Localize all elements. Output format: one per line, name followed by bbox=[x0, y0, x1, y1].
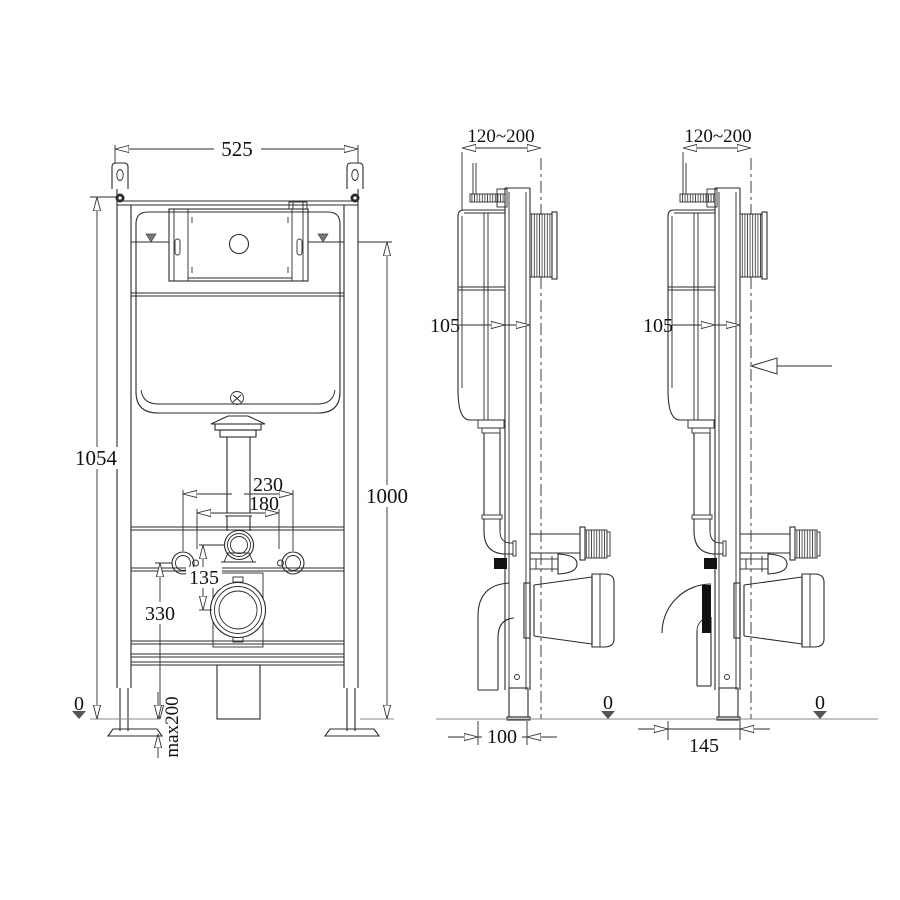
floor-marker-icon bbox=[72, 711, 86, 719]
dim-adjust-feet-label: max200 bbox=[162, 696, 183, 757]
floor-zero-b-label: 0 bbox=[815, 692, 825, 714]
dim-frame-depth-a: 105 bbox=[430, 315, 530, 337]
flush-bend-connector bbox=[225, 531, 254, 560]
outlet-clamp bbox=[702, 585, 711, 633]
dim-front-width: 525 bbox=[115, 137, 358, 163]
dim-foot-offset-b-label: 145 bbox=[689, 735, 719, 757]
dim-install-depth-a-label: 120~200 bbox=[467, 126, 534, 147]
cistern-tank bbox=[136, 212, 340, 437]
wall-mount-tabs bbox=[112, 163, 363, 189]
cistern-profile-b bbox=[668, 210, 715, 433]
frame-bar-side-b bbox=[715, 188, 740, 690]
floor-zero-a-label: 0 bbox=[603, 692, 613, 714]
flush-plate-sleeve bbox=[530, 212, 557, 279]
push-rod-hole bbox=[230, 235, 249, 254]
dim-frame-depth-b-label: 105 bbox=[643, 315, 673, 337]
floor-level-b: 0 bbox=[813, 692, 827, 719]
wall-anchor-bracket bbox=[680, 163, 717, 207]
dim-frame-height-label: 1054 bbox=[75, 446, 118, 470]
outlet-boss bbox=[211, 416, 265, 424]
flush-pipe-side-a bbox=[482, 433, 516, 569]
dim-front-width-label: 525 bbox=[221, 137, 253, 161]
foot-side-b bbox=[717, 675, 740, 721]
dim-bolt-spacing-inner: 180 bbox=[197, 493, 279, 549]
floor-marker-icon bbox=[813, 711, 827, 719]
wall-anchor-bracket bbox=[470, 163, 507, 207]
foot-side-a bbox=[507, 675, 530, 721]
dim-waterline-height: 1000 bbox=[364, 242, 411, 719]
soil-elbow-b bbox=[662, 584, 711, 686]
foot-plate-left bbox=[108, 729, 162, 736]
dim-frame-depth-a-label: 105 bbox=[430, 315, 460, 337]
floor-marker-icon bbox=[601, 711, 615, 719]
level-marker-icon bbox=[146, 234, 156, 242]
flush-plate-sleeve bbox=[740, 212, 767, 279]
floor-level-a: 0 bbox=[601, 692, 615, 719]
waste-horn-b bbox=[734, 574, 824, 647]
fixing-bolt-side-b bbox=[740, 554, 787, 574]
side-view-100: 120~200 bbox=[430, 126, 662, 748]
cistern-profile-a bbox=[458, 210, 505, 433]
level-marker-icon bbox=[318, 234, 328, 242]
toilet-frame-installation-drawing: 525 bbox=[0, 0, 900, 900]
flush-pipe-side-b bbox=[692, 433, 726, 569]
dim-bolt-inner-label: 180 bbox=[249, 493, 279, 515]
waste-horn-a bbox=[524, 574, 614, 647]
inlet-connector-a bbox=[530, 527, 610, 560]
inlet-connector-b bbox=[740, 527, 820, 560]
dim-install-depth-b-label: 120~200 bbox=[684, 126, 751, 147]
rear-anchor-bolt bbox=[494, 558, 507, 569]
dim-waterline-height-label: 1000 bbox=[366, 484, 408, 508]
dim-foot-offset-a: 100 bbox=[448, 721, 557, 748]
rear-anchor-bolt bbox=[704, 558, 717, 569]
front-view: 525 bbox=[72, 137, 411, 758]
water-level-line bbox=[131, 234, 392, 242]
technical-drawing-page: 525 bbox=[0, 0, 900, 900]
frame-base bbox=[90, 665, 394, 736]
dim-frame-height: 1054 bbox=[73, 197, 119, 719]
soil-block bbox=[217, 665, 260, 719]
dim-frame-depth-b: 105 bbox=[643, 315, 740, 337]
flush-plate-access-box bbox=[169, 202, 308, 281]
dim-foot-offset-b: 145 bbox=[638, 721, 770, 757]
foot-plate-right bbox=[325, 729, 379, 736]
floor-level-front: 0 bbox=[72, 693, 86, 719]
side-view-145: 120~200 bbox=[638, 126, 878, 757]
dim-foot-offset-a-label: 100 bbox=[487, 726, 517, 748]
wall-direction-arrow-icon bbox=[751, 358, 832, 374]
dim-flush-outlet-label: 135 bbox=[189, 567, 219, 589]
dim-install-depth-b: 120~200 bbox=[683, 126, 752, 194]
fixing-bolt-side-a bbox=[530, 554, 577, 574]
frame-bar-side-a bbox=[505, 188, 530, 690]
dim-adjustable-feet: max200 bbox=[158, 692, 183, 758]
dim-outlet-height-label: 330 bbox=[145, 603, 175, 625]
